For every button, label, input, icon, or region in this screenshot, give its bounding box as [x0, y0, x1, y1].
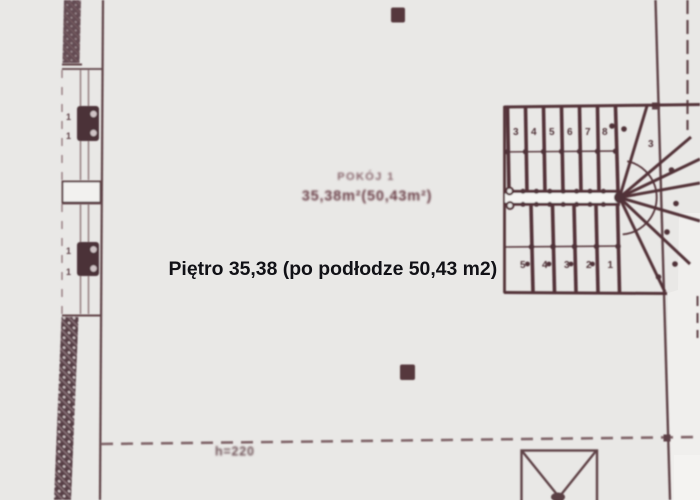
svg-text:3: 3: [564, 260, 570, 271]
svg-text:h=220: h=220: [215, 445, 255, 459]
svg-text:35,38m²(50,43m²): 35,38m²(50,43m²): [302, 189, 432, 205]
svg-text:Piętro 35,38 (po podłodze 50,4: Piętro 35,38 (po podłodze 50,43 m2): [169, 258, 498, 280]
svg-text:1: 1: [66, 131, 71, 141]
svg-text:1: 1: [66, 112, 71, 122]
svg-text:4: 4: [531, 127, 537, 138]
svg-text:8: 8: [602, 127, 608, 138]
svg-text:1: 1: [66, 246, 71, 256]
svg-text:5: 5: [549, 127, 555, 138]
svg-text:7: 7: [585, 127, 591, 138]
svg-text:6: 6: [567, 127, 573, 138]
svg-text:1: 1: [608, 260, 614, 271]
svg-text:3: 3: [648, 139, 654, 150]
svg-text:5: 5: [520, 260, 526, 271]
svg-text:4: 4: [542, 260, 548, 271]
svg-text:3: 3: [513, 127, 519, 138]
svg-text:POKÓJ 1: POKÓJ 1: [337, 170, 395, 183]
svg-text:1: 1: [66, 267, 71, 277]
